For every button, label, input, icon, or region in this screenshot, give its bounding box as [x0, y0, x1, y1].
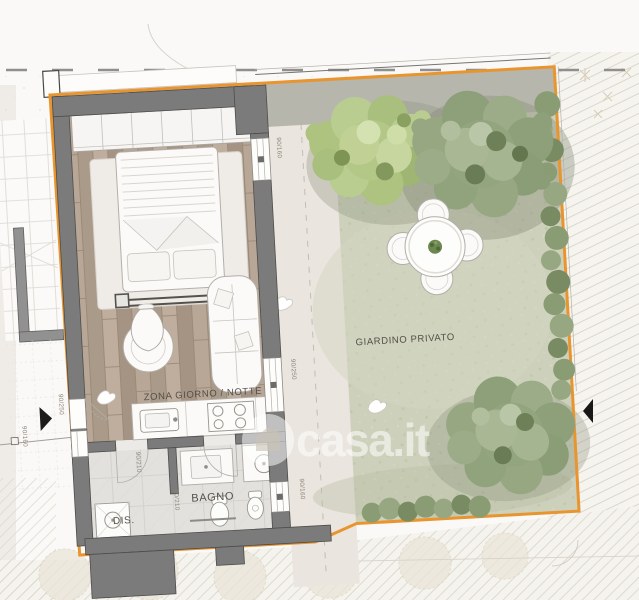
- garden-door: [263, 358, 284, 413]
- bath-vanity: [180, 448, 234, 485]
- dim-bath-window: 90/160: [298, 478, 306, 500]
- wall-stub: [90, 550, 176, 599]
- floorplan-canvas: ZONA GIORNO / NOTTE GIARDINO PRIVATO BAG…: [0, 0, 639, 600]
- bedroom-window: [251, 138, 271, 181]
- dim-left-window: 90/160: [20, 426, 28, 448]
- watermark-text: casa.it: [296, 414, 430, 466]
- sofa: [206, 275, 262, 394]
- dim-entrance-door: 90/250: [57, 394, 65, 416]
- wall-stub: [216, 546, 245, 566]
- bathroom-label: BAGNO: [191, 490, 234, 504]
- floor-plan-svg: ZONA GIORNO / NOTTE GIARDINO PRIVATO BAG…: [0, 0, 639, 600]
- bidet: [246, 491, 264, 520]
- hall-label: DIS.: [113, 515, 135, 527]
- watermark: casa.it: [242, 414, 430, 466]
- pillow: [127, 252, 170, 282]
- left-window: [71, 430, 88, 457]
- sink: [140, 408, 179, 432]
- pillow: [173, 249, 216, 279]
- dim-bedroom-window: 90/160: [275, 137, 283, 159]
- dim-bath-door: 80/210: [172, 489, 180, 511]
- plan-rotated-group: ZONA GIORNO / NOTTE GIARDINO PRIVATO BAG…: [0, 42, 597, 600]
- dim-hall-door: 90/210: [134, 451, 142, 473]
- fence-post: [11, 437, 18, 444]
- bath-window: [270, 481, 290, 512]
- dim-garden-door: 90/250: [289, 359, 297, 381]
